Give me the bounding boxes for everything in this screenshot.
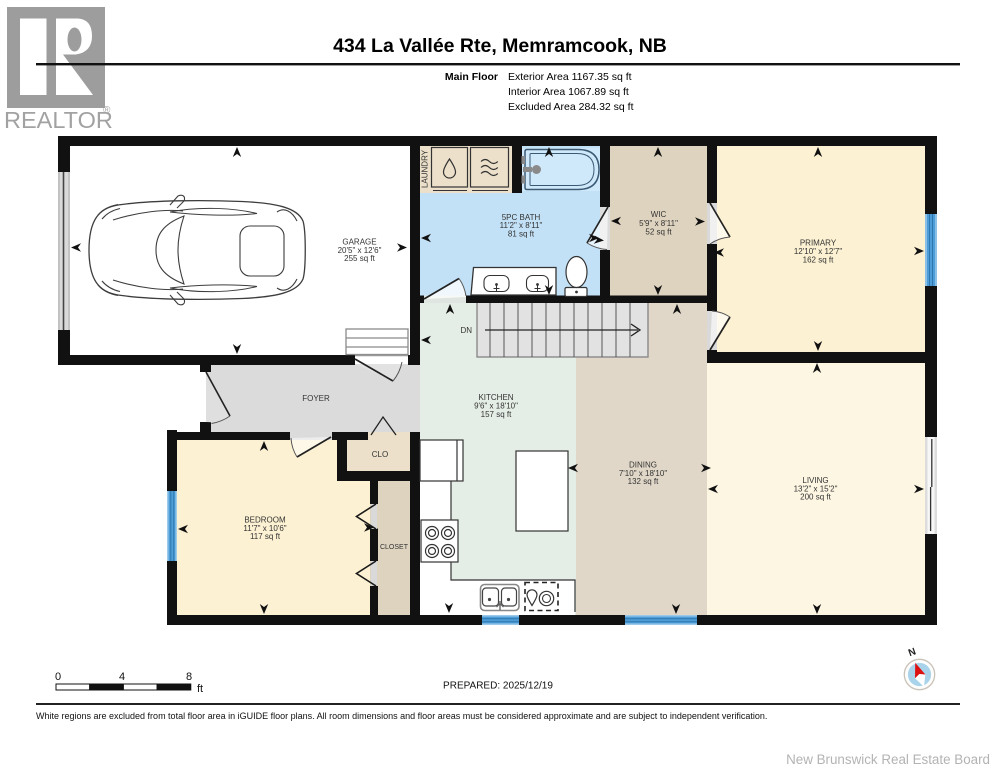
svg-text:CLO: CLO — [372, 450, 388, 459]
svg-text:0: 0 — [55, 671, 61, 683]
svg-text:CLOSET: CLOSET — [380, 544, 409, 551]
svg-text:DN: DN — [460, 326, 472, 335]
svg-text:132 sq ft: 132 sq ft — [628, 477, 659, 486]
svg-text:PREPARED: 2025/12/19: PREPARED: 2025/12/19 — [443, 681, 553, 692]
svg-text:157 sq ft: 157 sq ft — [481, 410, 512, 419]
svg-text:REALTOR: REALTOR — [4, 107, 113, 133]
svg-text:162 sq ft: 162 sq ft — [803, 256, 834, 265]
svg-text:255 sq ft: 255 sq ft — [344, 254, 375, 263]
svg-text:4: 4 — [119, 671, 125, 683]
svg-text:ft: ft — [197, 683, 203, 695]
svg-text:White regions are excluded fro: White regions are excluded from total fl… — [36, 711, 767, 721]
svg-text:LAUNDRY: LAUNDRY — [421, 149, 430, 188]
svg-text:WIC: WIC — [651, 210, 667, 219]
svg-text:Interior Area 1067.89 sq ft: Interior Area 1067.89 sq ft — [508, 86, 629, 98]
svg-text:434 La Vallée Rte, Memramcook,: 434 La Vallée Rte, Memramcook, NB — [333, 35, 667, 57]
svg-text:8: 8 — [186, 671, 192, 683]
svg-text:81 sq ft: 81 sq ft — [508, 230, 535, 239]
svg-text:®: ® — [103, 105, 111, 116]
svg-text:Exterior Area 1167.35 sq ft: Exterior Area 1167.35 sq ft — [508, 71, 632, 83]
svg-text:FOYER: FOYER — [302, 394, 330, 403]
svg-text:200 sq ft: 200 sq ft — [800, 493, 831, 502]
svg-text:New Brunswick Real Estate Boar: New Brunswick Real Estate Board — [786, 752, 990, 767]
svg-text:Main Floor: Main Floor — [445, 71, 498, 83]
svg-text:Excluded Area 284.32 sq ft: Excluded Area 284.32 sq ft — [508, 101, 634, 113]
svg-text:117 sq ft: 117 sq ft — [250, 532, 281, 541]
svg-text:52 sq ft: 52 sq ft — [645, 228, 672, 237]
